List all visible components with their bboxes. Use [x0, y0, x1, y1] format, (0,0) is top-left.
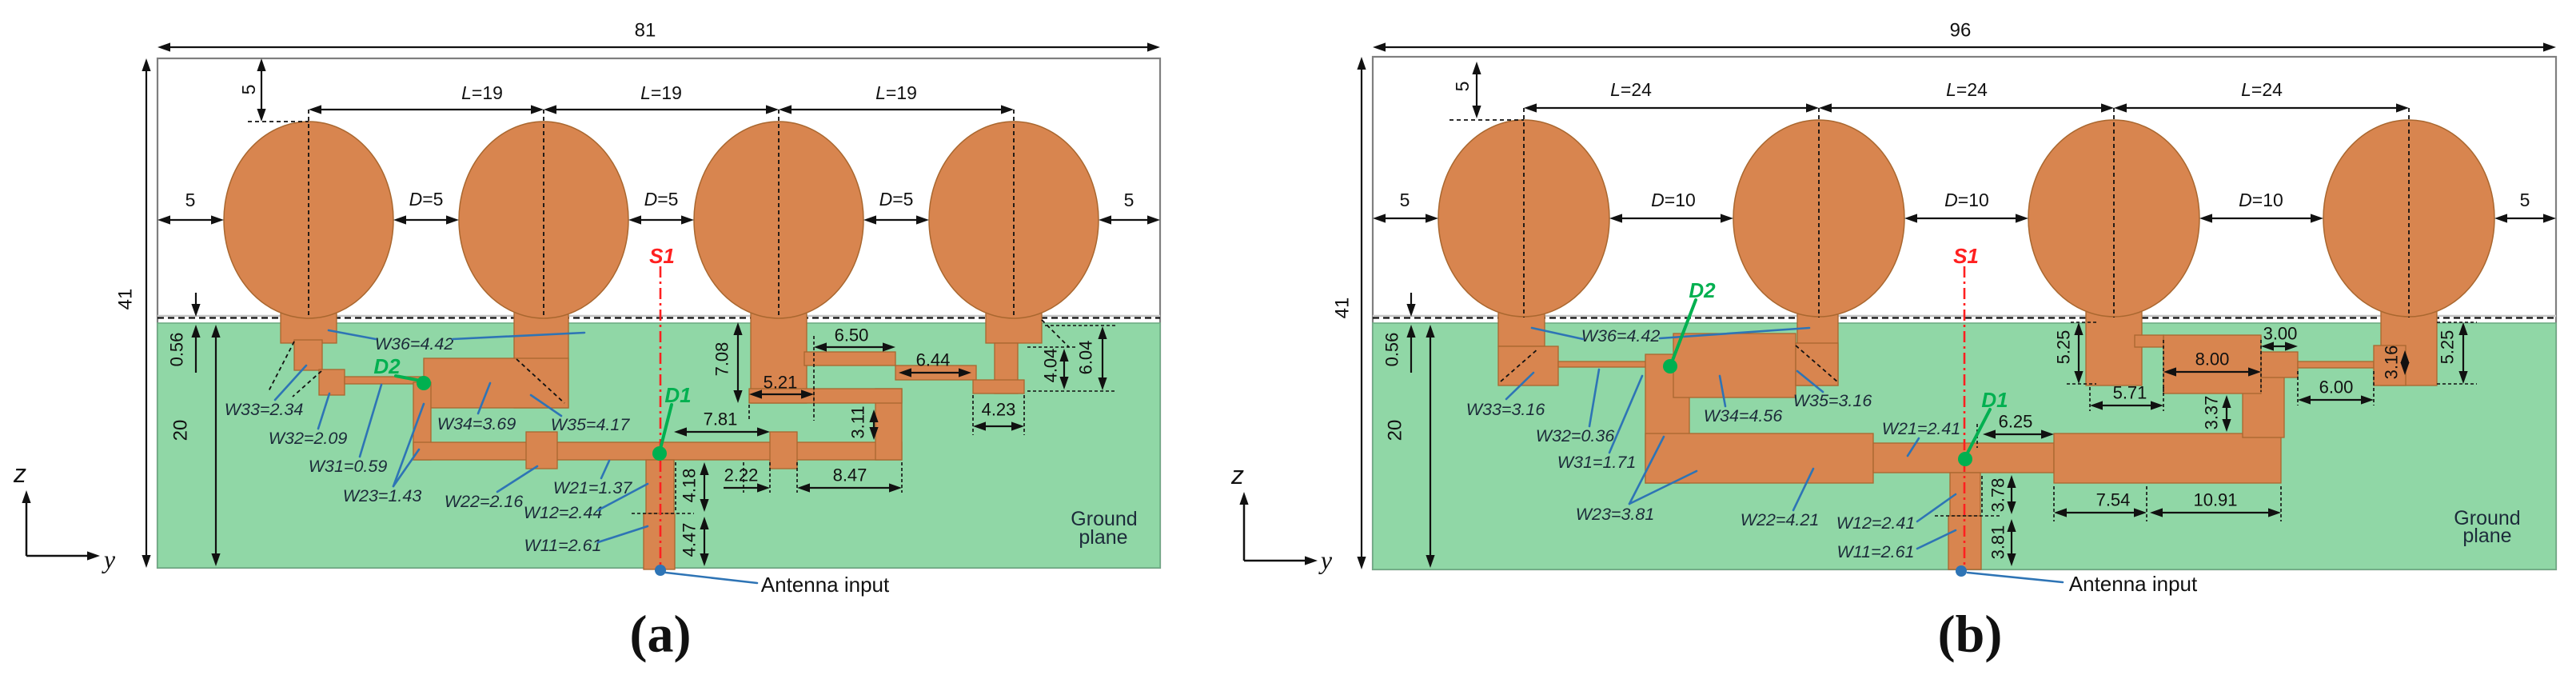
svg-text:L=24: L=24: [1946, 79, 1988, 100]
svg-text:5: 5: [2520, 190, 2530, 210]
svg-text:y: y: [1318, 545, 1333, 574]
svg-text:D1: D1: [1981, 388, 2008, 412]
svg-text:W31=0.59: W31=0.59: [309, 457, 388, 476]
svg-text:W36=4.42: W36=4.42: [375, 334, 454, 353]
svg-text:D=5: D=5: [879, 189, 914, 210]
svg-text:4.18: 4.18: [680, 469, 700, 503]
svg-text:81: 81: [635, 20, 656, 42]
svg-text:5: 5: [185, 190, 196, 210]
svg-text:5: 5: [238, 85, 259, 95]
svg-text:S1: S1: [1953, 244, 1979, 268]
svg-text:41: 41: [115, 289, 137, 310]
svg-text:5: 5: [1452, 82, 1473, 92]
svg-text:W32=2.09: W32=2.09: [269, 429, 348, 448]
svg-text:W22=4.21: W22=4.21: [1741, 510, 1820, 529]
svg-text:3.37: 3.37: [2202, 396, 2222, 430]
svg-text:D=10: D=10: [2239, 190, 2283, 210]
svg-text:W35=3.16: W35=3.16: [1793, 391, 1872, 410]
svg-text:20: 20: [1385, 420, 1406, 441]
svg-text:W11=2.61: W11=2.61: [1836, 542, 1914, 561]
svg-text:5: 5: [1124, 190, 1134, 210]
svg-text:3.00: 3.00: [2263, 324, 2298, 344]
svg-text:4.47: 4.47: [680, 523, 700, 557]
svg-text:(a): (a): [630, 605, 692, 664]
svg-text:W33=2.34: W33=2.34: [225, 400, 304, 419]
svg-text:0.56: 0.56: [1382, 333, 1402, 367]
svg-text:6.25: 6.25: [1999, 412, 2033, 432]
svg-text:Antenna input: Antenna input: [761, 573, 890, 597]
svg-text:6.04: 6.04: [1076, 341, 1096, 375]
svg-text:L=19: L=19: [875, 82, 917, 103]
svg-text:W23=3.81: W23=3.81: [1576, 505, 1655, 524]
svg-text:41: 41: [1332, 298, 1354, 319]
svg-text:3.81: 3.81: [1988, 525, 2008, 560]
svg-text:L=19: L=19: [640, 82, 682, 103]
svg-text:plane: plane: [1079, 526, 1127, 549]
svg-text:D=5: D=5: [644, 189, 679, 210]
svg-text:L=24: L=24: [1610, 79, 1652, 100]
svg-text:W32=0.36: W32=0.36: [1536, 426, 1615, 445]
svg-text:5: 5: [1400, 190, 1410, 210]
svg-text:(b): (b): [1938, 605, 2003, 664]
svg-text:D=10: D=10: [1944, 190, 1989, 210]
svg-text:plane: plane: [2462, 525, 2511, 547]
svg-text:z: z: [13, 459, 26, 488]
svg-text:7.81: 7.81: [704, 409, 738, 429]
svg-text:2.22: 2.22: [724, 465, 759, 485]
svg-text:6.50: 6.50: [835, 326, 869, 345]
svg-text:7.54: 7.54: [2096, 490, 2131, 510]
svg-text:W33=3.16: W33=3.16: [1466, 400, 1545, 419]
svg-text:7.08: 7.08: [712, 342, 732, 377]
svg-text:4.23: 4.23: [982, 400, 1016, 420]
svg-text:W21=2.41: W21=2.41: [1882, 419, 1961, 438]
svg-text:W21=1.37: W21=1.37: [553, 478, 633, 497]
svg-text:L=19: L=19: [461, 82, 503, 103]
svg-text:D1: D1: [664, 383, 691, 407]
svg-text:Antenna input: Antenna input: [2069, 572, 2198, 596]
svg-text:S1: S1: [649, 244, 675, 268]
svg-text:L=24: L=24: [2241, 79, 2283, 100]
svg-text:5.71: 5.71: [2113, 383, 2147, 403]
svg-text:5.25: 5.25: [2054, 330, 2074, 365]
svg-text:D=5: D=5: [409, 189, 444, 210]
svg-text:W35=4.17: W35=4.17: [551, 415, 631, 434]
svg-text:8.00: 8.00: [2195, 349, 2230, 369]
svg-text:5.25: 5.25: [2438, 330, 2458, 365]
svg-text:0.56: 0.56: [167, 333, 187, 367]
svg-text:W36=4.42: W36=4.42: [1581, 326, 1661, 345]
svg-text:10.91: 10.91: [2193, 490, 2237, 510]
svg-text:4.04: 4.04: [1041, 349, 1061, 383]
svg-text:3.78: 3.78: [1988, 478, 2008, 513]
svg-text:5.21: 5.21: [764, 373, 798, 393]
svg-text:W34=3.69: W34=3.69: [437, 414, 516, 433]
svg-text:W12=2.44: W12=2.44: [524, 503, 603, 522]
svg-text:6.44: 6.44: [916, 350, 951, 370]
svg-text:3.11: 3.11: [848, 405, 868, 438]
svg-text:W34=4.56: W34=4.56: [1704, 406, 1783, 425]
svg-text:W31=1.71: W31=1.71: [1557, 453, 1637, 472]
svg-text:D2: D2: [1689, 278, 1716, 302]
svg-text:20: 20: [170, 420, 192, 441]
svg-text:3.16: 3.16: [2382, 345, 2402, 380]
svg-text:D=10: D=10: [1651, 190, 1696, 210]
svg-text:6.00: 6.00: [2319, 377, 2354, 397]
svg-text:96: 96: [1950, 20, 1972, 42]
svg-text:W22=2.16: W22=2.16: [445, 492, 524, 511]
svg-text:8.47: 8.47: [833, 465, 867, 485]
svg-text:z: z: [1230, 461, 1244, 489]
svg-text:W11=2.61: W11=2.61: [524, 536, 601, 555]
svg-text:y: y: [102, 545, 116, 573]
svg-text:W12=2.41: W12=2.41: [1836, 513, 1916, 533]
svg-text:W23=1.43: W23=1.43: [343, 486, 422, 505]
